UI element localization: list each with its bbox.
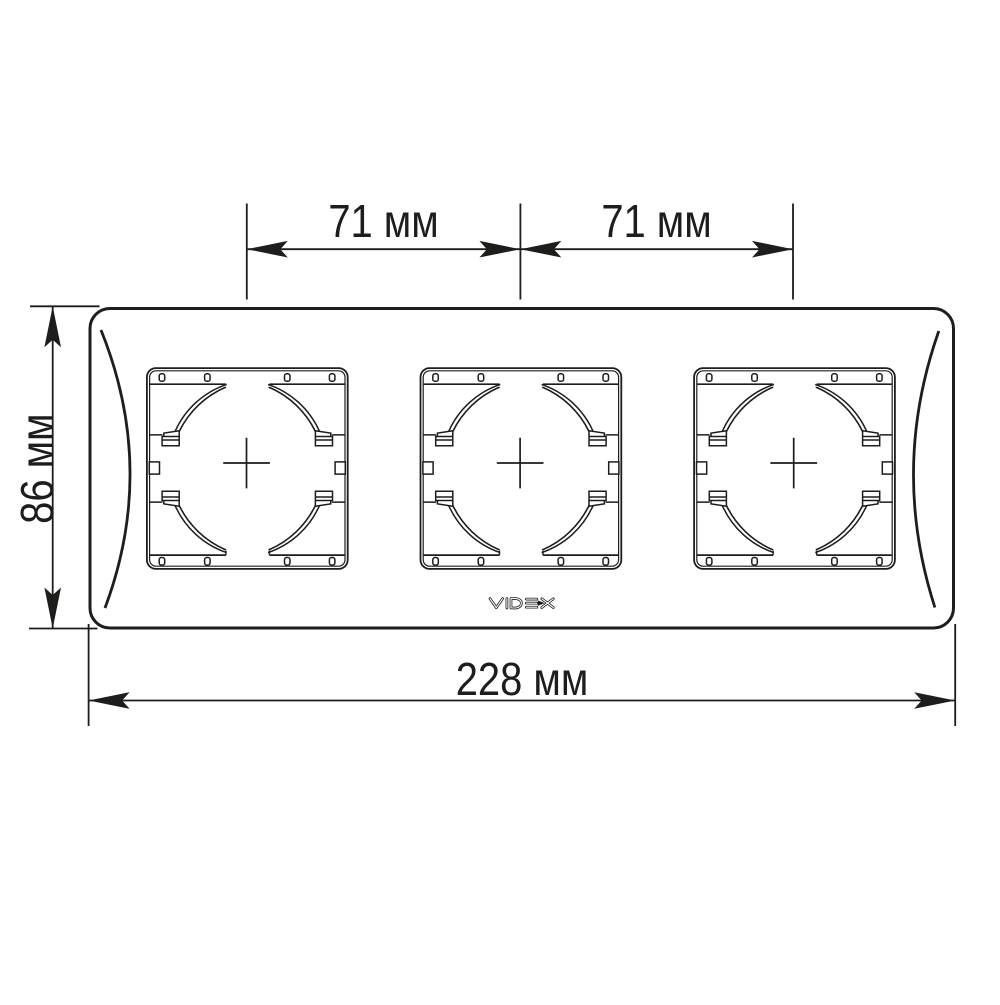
svg-text:71 мм: 71 мм [328,196,438,247]
svg-text:86 мм: 86 мм [12,414,63,524]
svg-text:228 мм: 228 мм [456,654,589,705]
svg-text:71 мм: 71 мм [601,196,711,247]
